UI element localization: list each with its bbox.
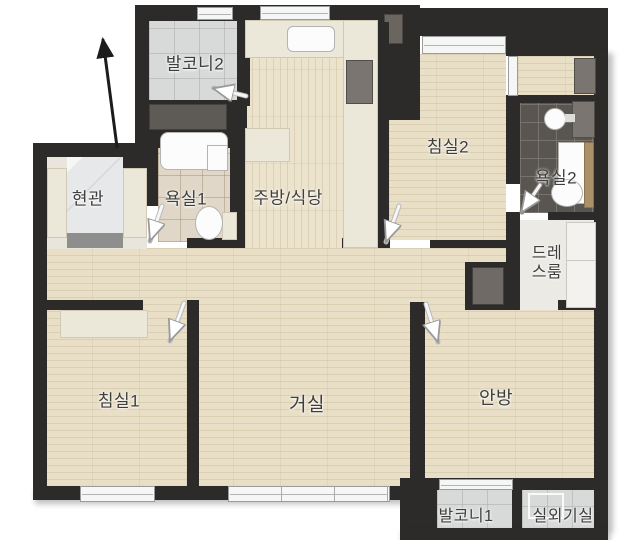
- label-master: 안방: [479, 384, 513, 410]
- window-bedroom1: [80, 486, 155, 502]
- glass-partition: [508, 56, 518, 96]
- label-entrance: 현관: [72, 185, 104, 210]
- window-master: [439, 479, 513, 490]
- entrance-mat: [67, 233, 123, 248]
- label-balcony1: 발코니1: [438, 502, 493, 526]
- bathroom2-wood-panel: [584, 142, 594, 208]
- wall-segment: [400, 478, 437, 530]
- balcony2-storage: [149, 104, 227, 130]
- window-living: [228, 486, 390, 502]
- kitchen-sink: [287, 26, 335, 52]
- wall-outer-bottom: [400, 528, 608, 540]
- wall-segment: [147, 130, 158, 206]
- window: [197, 7, 233, 20]
- wall-segment: [410, 302, 425, 488]
- dressroom-wardrobe: [566, 222, 596, 308]
- label-bedroom1: 침실1: [98, 387, 140, 412]
- bathroom1-cabinet: [222, 212, 237, 240]
- wall-segment: [506, 8, 608, 56]
- bathroom2-faucet: [565, 114, 575, 122]
- bathroom1-toilet: [195, 206, 223, 240]
- wall-segment: [123, 143, 147, 171]
- floor-plan: 발코니2 현관 욕실1 주방/식당 침실2 욕실2 드레스룸 침실1 거실 안방…: [0, 0, 631, 540]
- kitchen-counter-side: [343, 20, 378, 248]
- label-balcony2: 발코니2: [166, 50, 224, 75]
- label-dressroom: 드레스룸: [527, 244, 567, 282]
- wall-segment: [33, 300, 143, 310]
- wall-outer-left: [33, 143, 47, 500]
- kitchen-table: [245, 128, 290, 162]
- label-bedroom2: 침실2: [427, 133, 469, 158]
- window: [260, 6, 330, 20]
- window-bedroom2: [422, 36, 506, 54]
- wall-segment: [506, 212, 520, 220]
- label-outdoor-unit: 실외기실: [533, 502, 594, 526]
- alcove-bench: [574, 58, 596, 94]
- bathroom1-sink: [207, 145, 228, 171]
- wall-segment: [512, 486, 522, 532]
- shoe-closet-left: [47, 168, 67, 238]
- label-bathroom1: 욕실1: [165, 185, 207, 210]
- hall-wardrobe: [472, 267, 504, 305]
- bathroom2-cabinet: [572, 101, 595, 138]
- wall-segment: [430, 240, 506, 248]
- bathroom2-sink: [544, 108, 566, 130]
- wall-segment: [548, 212, 600, 220]
- wall-segment: [420, 8, 508, 36]
- label-bathroom2: 욕실2: [535, 164, 577, 189]
- label-living: 거실: [289, 390, 325, 417]
- bedroom1-closet: [60, 310, 148, 338]
- shoe-closet-right: [123, 168, 147, 238]
- entrance-direction-arrow: [103, 40, 117, 147]
- refrigerator: [346, 60, 373, 104]
- label-kitchen: 주방/식당: [253, 184, 323, 209]
- wall-outer-right: [594, 50, 608, 530]
- wall-segment: [187, 300, 199, 488]
- wall-segment: [506, 95, 520, 184]
